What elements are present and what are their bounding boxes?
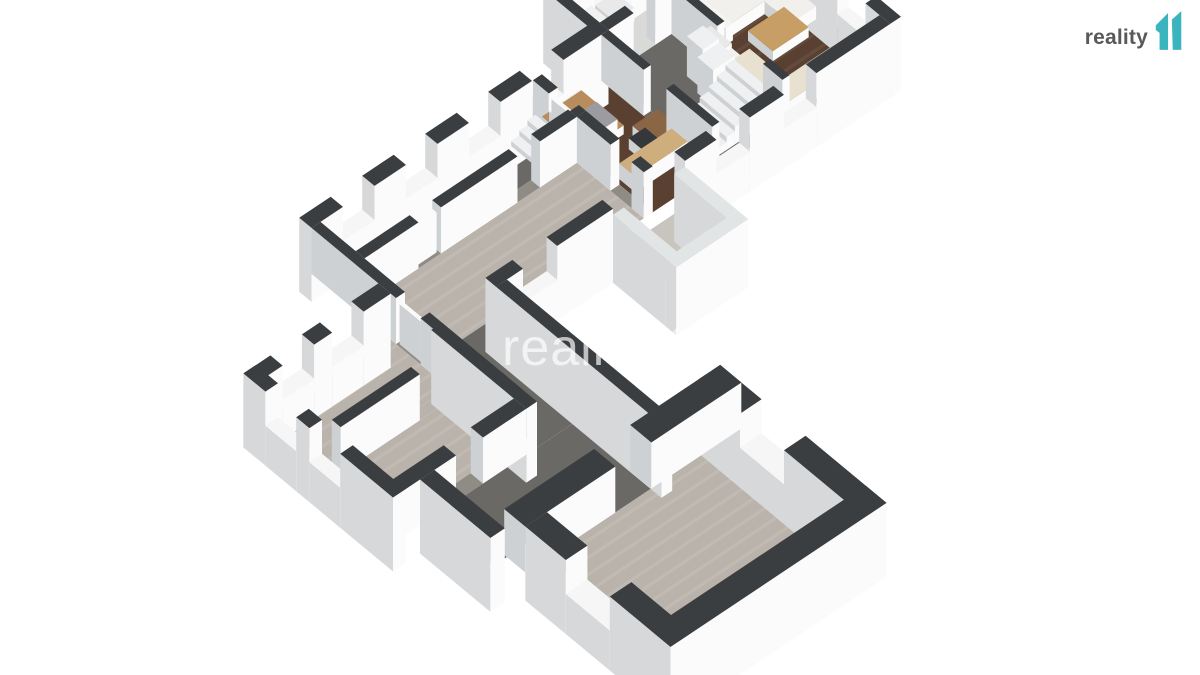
wall-big-bed-2 [632, 156, 653, 218]
walls-and-furniture [243, 0, 901, 675]
brand-logo: reality [1085, 10, 1186, 52]
floorplan-render [0, 0, 1200, 675]
brand-logo-numerals-icon [1152, 10, 1186, 52]
brand-logo-text: reality [1085, 27, 1148, 52]
floorplan-stage: reality reality [0, 0, 1200, 675]
